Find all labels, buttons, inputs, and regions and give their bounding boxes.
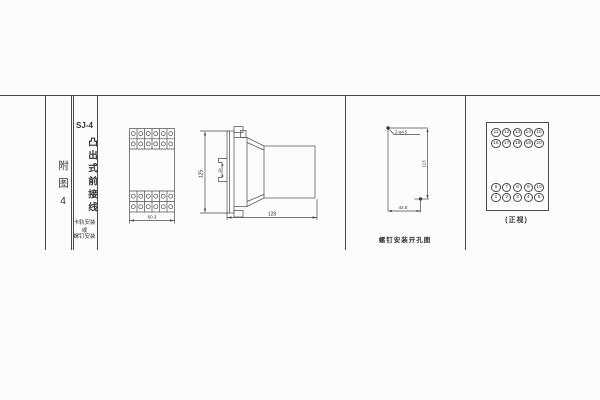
terminal: 4 <box>524 193 533 202</box>
terminal: 9 <box>524 183 533 192</box>
side-clip-dim: 35 <box>218 168 222 172</box>
mounting-width-dim: 44.5 <box>399 205 408 210</box>
terminal: 2 <box>502 193 511 202</box>
side-height-dim: 125 <box>199 170 205 179</box>
top-border-rule <box>0 95 600 96</box>
terminal: 13 <box>513 128 522 137</box>
divider-line-2 <box>465 95 466 250</box>
figure-label: 附图4 <box>45 156 71 218</box>
terminal-row-4: 12345 <box>487 193 548 202</box>
terminal: 14 <box>524 128 533 137</box>
front-view-drawing: 60.3 <box>125 124 181 228</box>
terminal: 7 <box>502 183 511 192</box>
terminal: 16 <box>491 139 500 148</box>
mounting-holes-label: 2-φ4.5 <box>395 130 408 135</box>
terminal: 5 <box>534 193 543 202</box>
terminal-row-1: 1112131415 <box>487 128 548 137</box>
terminal: 10 <box>534 183 543 192</box>
figure-label-text: 附图4 <box>45 160 71 214</box>
type-label: 凸出式前接线 <box>71 136 98 216</box>
terminal: 12 <box>502 128 511 137</box>
mounting-height-dim: 113 <box>422 160 427 168</box>
mount-note-line3: 螺钉安装 <box>71 232 98 240</box>
terminal: 18 <box>513 139 522 148</box>
terminal: 17 <box>502 139 511 148</box>
terminal-panel: 1112131415 1617181920 678910 12345 <box>486 122 549 211</box>
terminal: 19 <box>524 139 533 148</box>
terminal-panel-caption: (正视) <box>486 215 547 225</box>
front-width-dim: 60.3 <box>148 215 157 220</box>
model-label: SJ-4 <box>71 121 98 130</box>
mounting-hole-drawing: 2-φ4.5 113 44.5 <box>375 118 437 220</box>
mounting-caption: 螺钉安装开孔图 <box>372 234 438 244</box>
divider-line-1 <box>345 95 346 250</box>
terminal: 11 <box>491 128 500 137</box>
terminal: 20 <box>534 139 543 148</box>
side-depth-dim: 128 <box>268 212 277 218</box>
type-label-text: 凸出式前接线 <box>71 137 98 215</box>
terminal-row-2: 1617181920 <box>487 139 548 148</box>
terminal: 3 <box>513 193 522 202</box>
side-view-drawing: 125 35 128 <box>193 120 328 225</box>
terminal: 8 <box>513 183 522 192</box>
terminal: 6 <box>491 183 500 192</box>
terminal: 1 <box>491 193 500 202</box>
terminal-row-3: 678910 <box>487 183 548 192</box>
terminal: 15 <box>534 128 543 137</box>
